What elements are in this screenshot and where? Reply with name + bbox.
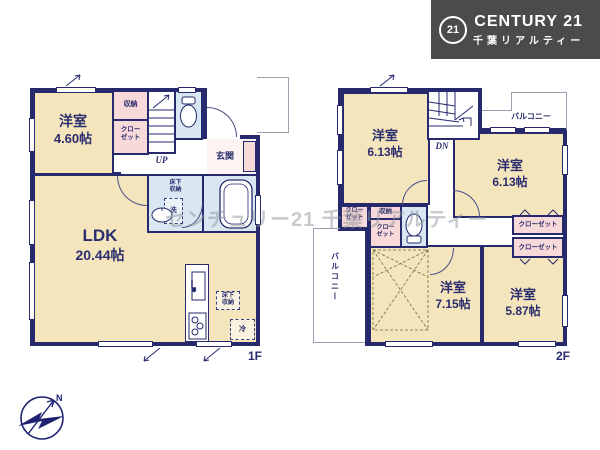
f1-sliding-door-gap: [60, 173, 110, 175]
f1-entrance-label: 玄関: [205, 151, 245, 162]
f2-window-balcony1: [490, 127, 516, 133]
f2-storage-label: 収納: [369, 208, 402, 216]
f2-room-nw-size: 6.13帖: [345, 145, 425, 159]
f2-closet-east1-label: クローゼット: [512, 221, 564, 229]
f1-stairs: [147, 90, 176, 154]
f2-toilet: [400, 205, 428, 248]
f1-underfloor-storage-label: 床下 収納: [158, 180, 193, 194]
f1-window-left3: [29, 262, 35, 320]
f1-window-left1: [29, 118, 35, 152]
f2-window-left2: [337, 150, 343, 185]
logo-circle-21-icon: 21: [439, 16, 467, 44]
porch-outline-bottom: [257, 132, 289, 133]
f1-stairs-up-label: UP: [147, 155, 176, 166]
f2-room-se-name: 洋室: [488, 287, 558, 302]
porch-outline-top: [257, 77, 289, 78]
f1-vent-arrow-bottom2: [200, 346, 222, 364]
f1-room-west-name: 洋室: [38, 113, 108, 130]
f2-window-bottom1: [385, 341, 433, 347]
f1-bathtub-icon: [218, 178, 254, 230]
f2-balcony-tr-seg1: [482, 110, 512, 111]
century21-logo: 21 CENTURY 21 千葉リアルティー: [431, 0, 600, 59]
f1-window-right1: [255, 195, 261, 225]
f1-vent-arrow-top: [64, 72, 84, 88]
f1-fridge-label: 冷: [230, 326, 255, 334]
f1-floor-label: 1F: [242, 349, 268, 363]
f1-ldk-size: 20.44帖: [45, 247, 155, 264]
f1-toilet: [174, 90, 203, 140]
f2-room-ne-size: 6.13帖: [470, 175, 550, 189]
f2-closet-chevrons-top: [518, 208, 562, 216]
f2-window-right1: [562, 145, 568, 175]
f2-balcony-left-label: バルコニー: [330, 252, 339, 302]
f1-storage-label: 収納: [113, 101, 148, 109]
porch-outline-right: [288, 77, 289, 133]
f2-closet-east2-label: クローゼット: [512, 244, 564, 252]
f2-window-right2: [562, 295, 568, 327]
f2-balcony-tr-seg3: [511, 92, 567, 93]
f1-kitchen-sink-icon: [188, 270, 207, 304]
f2-balcony-tr-seg4: [566, 92, 567, 130]
f2-closet-mid-label: クロー ゼット: [369, 225, 402, 239]
f2-room-se-size: 5.87帖: [483, 304, 563, 318]
f1-stove-icon: [188, 312, 207, 340]
f2-window-bottom2: [518, 341, 556, 347]
compass-icon: N: [12, 388, 74, 446]
logo-subtitle-text: 千葉リアルティー: [473, 32, 584, 47]
f1-entrance-door-arc: [207, 107, 237, 137]
f2-balcony-tr-seg2: [511, 92, 512, 111]
f2-window-left1: [337, 105, 343, 135]
f1-sink-icon: [150, 205, 176, 227]
compass-north-label: N: [56, 393, 63, 403]
f1-underfloor-storage2-label: 床下 収納: [216, 293, 240, 307]
f2-balcony-top-label: バルコニー: [495, 112, 567, 121]
f1-closet-label: クロー ゼット: [113, 126, 148, 141]
f2-floor-label: 2F: [550, 349, 576, 363]
f1-vent-arrow-bottom1: [140, 346, 162, 364]
f2-vent-arrow-top: [378, 72, 398, 88]
f1-window-left2: [29, 200, 35, 245]
f2-room-nw-name: 洋室: [350, 128, 420, 143]
f2-attic-dashed-box: [372, 249, 430, 332]
f2-stairs-down-label: DN: [427, 141, 457, 152]
f2-stairs: [427, 90, 480, 140]
f2-closet-chevrons-bottom: [518, 258, 562, 266]
f2-window-balcony2: [524, 127, 550, 133]
f2-closet-west-label: クロー ゼット: [340, 208, 369, 222]
floor-plan-image: 21 CENTURY 21 千葉リアルティー LDK 20.44帖 洋室 4.6…: [0, 0, 600, 450]
f2-balcony-l-seg1: [313, 228, 314, 343]
f2-balcony-l-seg3: [313, 342, 365, 343]
logo-brand-text: CENTURY 21: [474, 13, 583, 31]
f1-room-west-size: 4.60帖: [33, 131, 113, 146]
f1-ldk-name: LDK: [55, 226, 145, 246]
f1-window-top2: [178, 87, 196, 93]
f2-room-ne-name: 洋室: [475, 158, 545, 173]
